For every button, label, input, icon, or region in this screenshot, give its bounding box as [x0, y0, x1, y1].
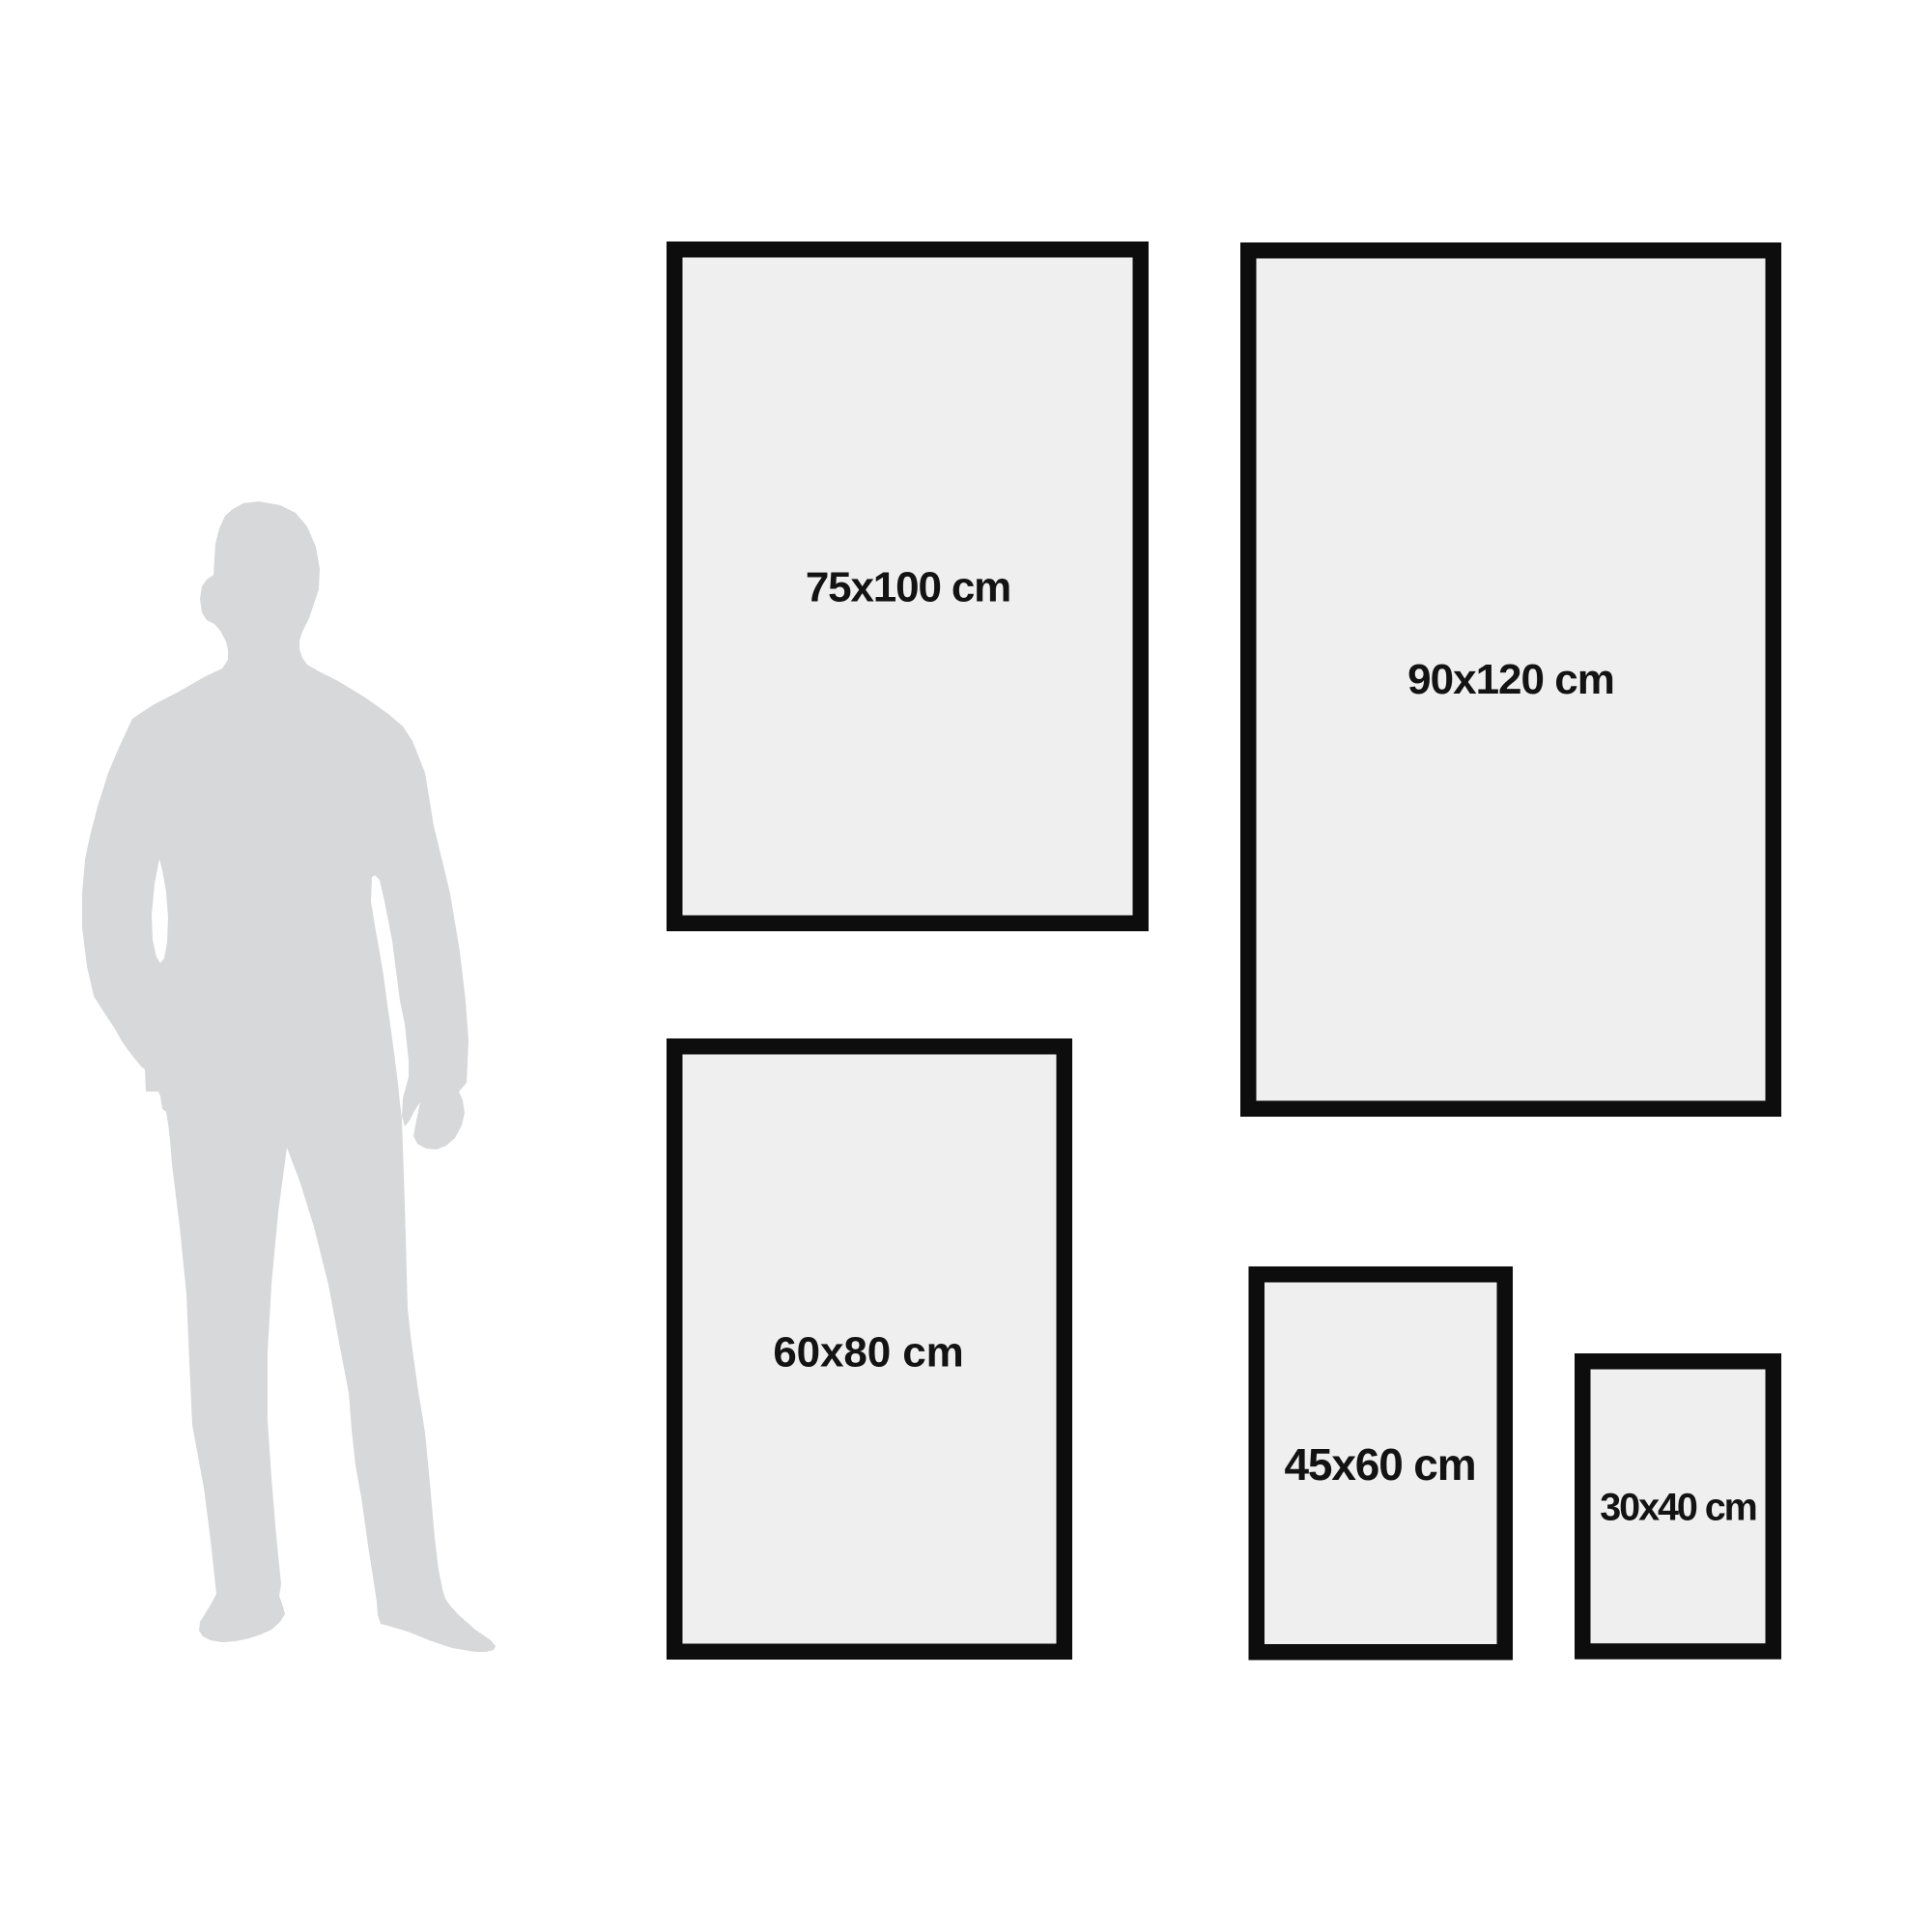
svg-text:75x100 cm: 75x100 cm — [806, 564, 1010, 611]
svg-text:30x40 cm: 30x40 cm — [1600, 1487, 1756, 1529]
svg-text:45x60 cm: 45x60 cm — [1285, 1439, 1476, 1490]
svg-text:90x120 cm: 90x120 cm — [1407, 656, 1614, 703]
svg-text:60x80 cm: 60x80 cm — [773, 1329, 963, 1377]
